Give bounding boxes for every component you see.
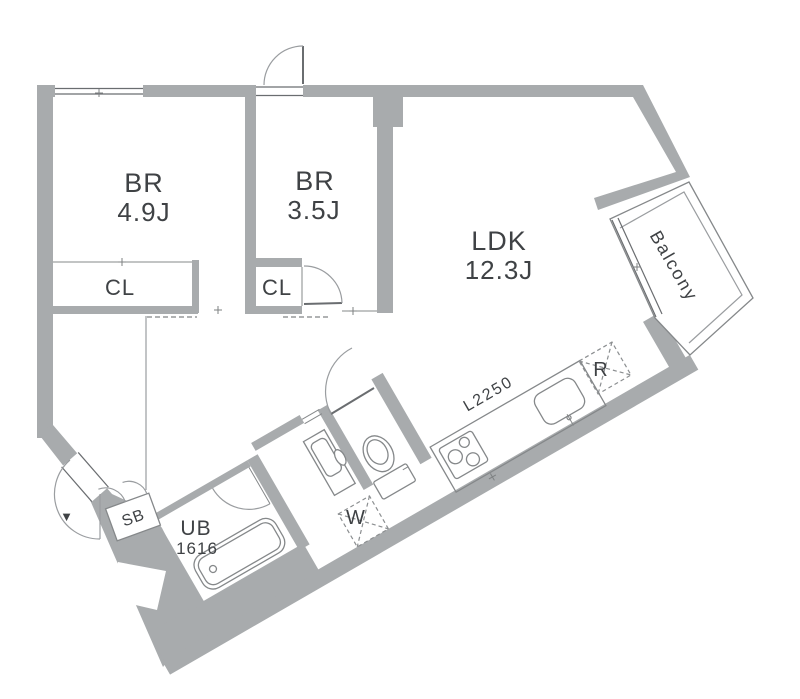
inner-walls <box>37 97 403 314</box>
dimension-tick <box>118 258 126 266</box>
cl2-top-wall <box>250 258 302 267</box>
ldk-name-label: LDK <box>471 226 527 256</box>
br2-name-label: BR <box>295 166 335 196</box>
floor-plan-canvas: L2250 ▼ SB <box>0 0 800 699</box>
ldk-door <box>326 348 374 414</box>
unit-bath-size-label: 1616 <box>176 539 218 558</box>
br1-size-label: 4.9J <box>117 197 170 227</box>
left-wall <box>37 85 53 438</box>
ldk-divider-wall <box>377 97 393 313</box>
br1-window <box>55 84 143 98</box>
cl2-label: CL <box>262 275 292 300</box>
refrigerator-label: R <box>593 359 608 381</box>
bedroom-divider-wall <box>245 97 256 313</box>
entrance-door <box>54 452 108 539</box>
dimension-tick <box>214 306 222 314</box>
br1-bottom-wall <box>37 306 198 314</box>
cl2-bottom-wall <box>245 306 302 314</box>
entrance-marker-icon: ▼ <box>60 509 74 524</box>
ldk-size-label: 12.3J <box>465 255 534 285</box>
floor-plan-svg: L2250 ▼ SB <box>0 0 800 699</box>
kitchen-counter-label: L2250 <box>461 373 517 415</box>
washer-label: W <box>346 507 366 529</box>
br1-name-label: BR <box>124 168 164 198</box>
bath-top-wall <box>154 460 251 520</box>
balcony-area: Balcony <box>610 182 753 355</box>
unit-bath-label: UB <box>180 517 211 540</box>
washroom-top-wall <box>251 415 304 451</box>
cl1-side-wall <box>192 260 199 313</box>
br2-top-door <box>256 46 303 98</box>
bottom-outer-wall <box>162 355 699 675</box>
dimension-tick <box>349 307 357 315</box>
br2-door <box>304 266 342 304</box>
cl1-label: CL <box>105 275 135 300</box>
br2-size-label: 3.5J <box>287 195 340 225</box>
